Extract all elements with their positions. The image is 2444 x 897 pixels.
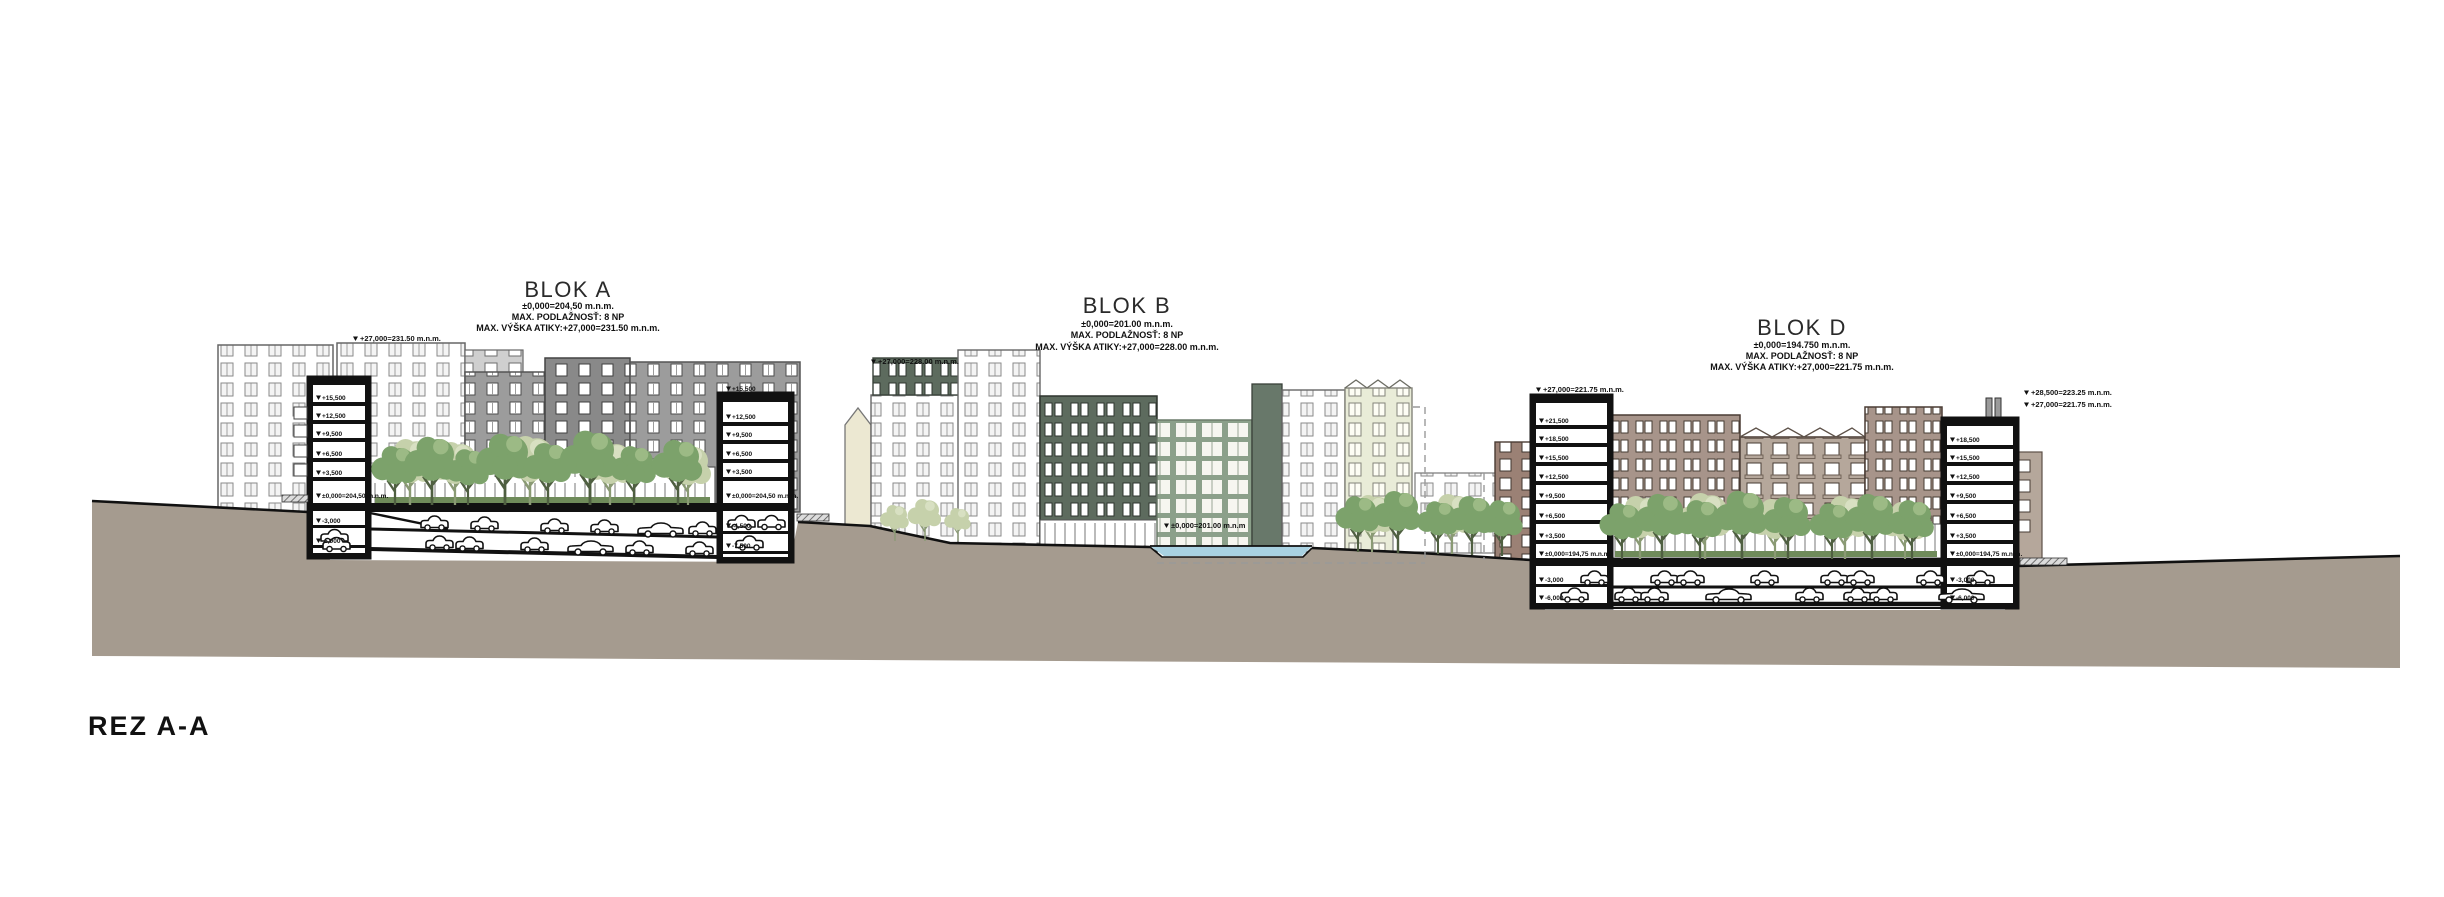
blok-a-max-storeys: MAX. PODLAŽNOSŤ: 8 NP (512, 311, 625, 322)
level-label: +6,500 (322, 451, 342, 458)
section-drawing: BLOK A ±0,000=204,50 m.n.m. MAX. PODLAŽN… (0, 0, 2444, 897)
level-label: +6,500 (1956, 513, 1976, 520)
level-label: ±0,000=194,75 m.n.m. (1545, 551, 1611, 558)
blok-d-podium-slab (1531, 558, 2018, 566)
level-label: ±0,000=204,50 m.n.m. (322, 493, 388, 500)
tower-roof-slab (1531, 395, 1612, 403)
blok-b-building-white-tall (958, 350, 1040, 548)
blok-b-zero-level: ±0,000=201.00 m.n.m. (1081, 319, 1173, 329)
level-label: +18,500 (322, 376, 346, 383)
block-title-d: BLOK D ±0,000=194.750 m.n.m. MAX. PODLAŽ… (1710, 315, 1894, 372)
section-label: REZ A-A (88, 711, 211, 741)
level-label: +15,500 (732, 386, 756, 393)
level-label: -3,000 (322, 518, 341, 525)
tower-wall (718, 393, 723, 562)
level-label: -7,500 (732, 543, 751, 550)
level-label: -6,000 (1956, 595, 1975, 602)
level-label: +9,500 (732, 432, 752, 439)
blok-d-title: BLOK D (1757, 315, 1847, 340)
level-label: +9,500 (1545, 493, 1565, 500)
pond-water (1150, 546, 1312, 556)
blok-a-max-attic: MAX. VÝŠKA ATIKY:+27,000=231.50 m.n.m. (476, 322, 660, 333)
level-label: -6,000 (322, 538, 341, 545)
blok-b-building-white-round (1282, 390, 1345, 552)
tower-wall (365, 377, 370, 558)
level-label: +9,500 (1956, 493, 1976, 500)
tower-roof-slab (718, 393, 793, 402)
level-label: ±0,000=204,50 m.n.m. (732, 493, 798, 500)
blok-a-zero-level: ±0,000=204,50 m.n.m. (522, 301, 614, 311)
level-label: -3,000 (1545, 577, 1564, 584)
tower-wall (308, 377, 313, 558)
blok-b-roofline-zigzag (1345, 380, 1411, 388)
blok-d-max-attic: MAX. VÝŠKA ATIKY:+27,000=221.75 m.n.m. (1710, 361, 1894, 372)
section-drawing-canvas: BLOK A ±0,000=204,50 m.n.m. MAX. PODLAŽN… (0, 0, 2444, 897)
level-label: +3,500 (322, 470, 342, 477)
level-label: +12,500 (1956, 474, 1980, 481)
level-label: -6,000 (1545, 595, 1564, 602)
level-label: -4,500 (732, 523, 751, 530)
pond (1150, 546, 1312, 556)
level-label: -3,000 (1956, 577, 1975, 584)
blok-d-left-attic-annotation: +27,000=221.75 m.n.m. (1543, 385, 1624, 394)
level-label: +6,500 (1545, 513, 1565, 520)
blok-b-attic-annotation: +27,000=228.00 m.n.m. (878, 357, 959, 366)
tower-wall (1531, 395, 1536, 608)
rooftop-stack-icon (1986, 398, 1992, 418)
blok-b-stair-tower (1252, 384, 1282, 546)
blok-d-zero-level: ±0,000=194.750 m.n.m. (1754, 340, 1851, 350)
level-label: ±0,000=194,75 m.n.m. (1956, 551, 2022, 558)
level-label: +12,500 (322, 413, 346, 420)
blok-d-right-upper-annotation: +28,500=223.25 m.n.m. (2031, 388, 2112, 397)
blok-d-right-lower-annotation: +27,000=221.75 m.n.m. (2031, 400, 2112, 409)
blok-a-podium-slab (308, 503, 793, 511)
level-label: +3,500 (1956, 533, 1976, 540)
level-label: +18,500 (1956, 437, 1980, 444)
blok-b-title: BLOK B (1083, 293, 1171, 318)
level-label: +21,500 (1545, 418, 1569, 425)
blok-b-zero-annotation: ±0,000=201.00 m.n.m (1171, 521, 1246, 530)
tower-wall (788, 393, 793, 562)
level-label: +12,500 (1545, 474, 1569, 481)
blok-d-roofline-zigzag (1740, 428, 1865, 437)
rooftop-stack-icon (1995, 398, 2001, 418)
block-title-a: BLOK A ±0,000=204,50 m.n.m. MAX. PODLAŽN… (476, 277, 660, 333)
level-label: +15,500 (1545, 455, 1569, 462)
level-label: +12,500 (732, 414, 756, 421)
blok-b-max-storeys: MAX. PODLAŽNOSŤ: 8 NP (1071, 329, 1184, 340)
blok-a-title: BLOK A (524, 277, 611, 302)
blok-a-hedge (375, 497, 710, 503)
level-label: +3,500 (732, 469, 752, 476)
blok-a-attic-annotation: +27,000=231.50 m.n.m. (360, 334, 441, 343)
tower-wall (2013, 418, 2018, 608)
level-label: +15,500 (1956, 455, 1980, 462)
level-label: +6,500 (732, 451, 752, 458)
level-label: +9,500 (322, 431, 342, 438)
level-label: +15,500 (322, 395, 346, 402)
level-label: +3,500 (1545, 533, 1565, 540)
level-label: +18,500 (1545, 436, 1569, 443)
block-title-b: BLOK B ±0,000=201.00 m.n.m. MAX. PODLAŽN… (1035, 293, 1219, 352)
blok-b-max-attic: MAX. VÝŠKA ATIKY:+27,000=228.00 m.n.m. (1035, 341, 1219, 352)
blok-d-max-storeys: MAX. PODLAŽNOSŤ: 8 NP (1746, 350, 1859, 361)
tower-roof-slab (1942, 418, 2018, 426)
